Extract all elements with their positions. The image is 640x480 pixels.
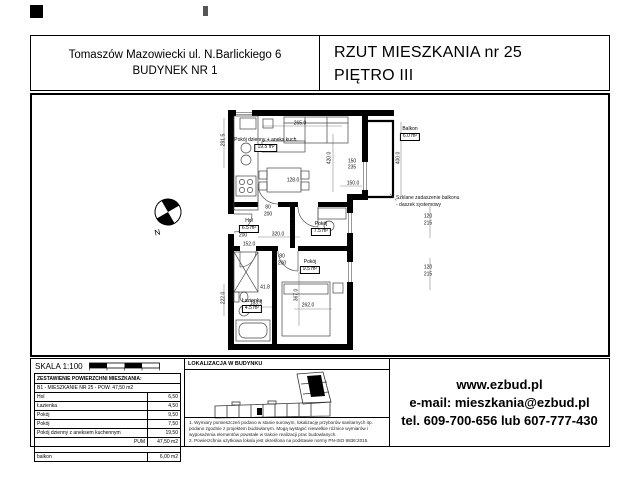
drawing-title: RZUT MIESZKANIA nr 25 bbox=[334, 41, 609, 64]
area-table-rows: Hol6,50Łazienka4,50Pokój9,50Pokój7,50Pok… bbox=[35, 393, 180, 438]
row-label: Pokój bbox=[35, 411, 147, 419]
area-table-subtitle: B1 - MIESZKANIE NR 25 - POW. 47,50 m2 bbox=[35, 384, 180, 393]
area-table-total-row: PUM 47,50 m2 bbox=[35, 438, 180, 447]
address-block: Tomaszów Mazowiecki ul. N.Barlickiego 6 … bbox=[31, 36, 320, 90]
row-label: Pokój bbox=[35, 420, 147, 428]
contact-box: www.ezbud.pl e-mail: mieszkania@ezbud.pl… bbox=[390, 358, 610, 447]
footnote: 2. Powierzchnia użytkowa lokalu jest okr… bbox=[189, 438, 385, 444]
floor-plan-frame bbox=[30, 93, 610, 357]
scale-label: SKALA 1:100 bbox=[35, 362, 83, 371]
row-value: 4,50 bbox=[147, 402, 180, 410]
building-number: BUDYNEK NR 1 bbox=[133, 65, 218, 77]
total-label: PUM bbox=[35, 438, 147, 446]
unit-marker bbox=[257, 408, 262, 415]
floor-label: PIĘTRO III bbox=[334, 64, 609, 87]
email: e-mail: mieszkania@ezbud.pl bbox=[409, 395, 589, 410]
area-table-row: Pokój7,50 bbox=[35, 420, 180, 429]
row-label: Pokój dzienny z aneksem kuchennym bbox=[35, 429, 147, 437]
drawing-sheet: Tomaszów Mazowiecki ul. N.Barlickiego 6 … bbox=[0, 0, 640, 480]
print-mark bbox=[30, 5, 43, 18]
building-footprint bbox=[185, 370, 388, 422]
row-value: 6,50 bbox=[147, 393, 180, 401]
area-table-title: ZESTAWIENIE POWIERZCHNI MIESZKANIA: bbox=[35, 374, 180, 384]
phone: tel. 609-700-656 lub 607-777-430 bbox=[401, 413, 598, 428]
area-table-row: Łazienka4,50 bbox=[35, 402, 180, 411]
row-label: Łazienka bbox=[35, 402, 147, 410]
balcony-label: balkon bbox=[35, 453, 147, 461]
website: www.ezbud.pl bbox=[456, 377, 542, 392]
area-table-row: Pokój9,50 bbox=[35, 411, 180, 420]
bottom-band: SKALA 1:100 ZESTAWIENIE POWIERZCHNI MIES… bbox=[30, 358, 610, 447]
footnote: 1. Wymiary pomieszczeń podano w stanie s… bbox=[189, 420, 385, 438]
row-label: Hol bbox=[35, 393, 147, 401]
title-block: Tomaszów Mazowiecki ul. N.Barlickiego 6 … bbox=[30, 35, 610, 91]
scale-row: SKALA 1:100 bbox=[31, 359, 184, 373]
row-value: 9,50 bbox=[147, 411, 180, 419]
total-value: 47,50 m2 bbox=[147, 438, 180, 446]
row-value: 7,50 bbox=[147, 420, 180, 428]
row-value: 19,50 bbox=[147, 429, 180, 437]
area-table: ZESTAWIENIE POWIERZCHNI MIESZKANIA: B1 -… bbox=[34, 373, 181, 462]
balcony-value: 6,00 m2 bbox=[147, 453, 180, 461]
area-table-row: Hol6,50 bbox=[35, 393, 180, 402]
location-box: LOKALIZACJA W BUDYNKU 1. Wymiary pomiesz… bbox=[185, 358, 390, 447]
print-mark bbox=[203, 6, 208, 16]
scale-bar bbox=[89, 362, 161, 371]
area-table-row: Pokój dzienny z aneksem kuchennym19,50 bbox=[35, 429, 180, 438]
drawing-title-block: RZUT MIESZKANIA nr 25 PIĘTRO III bbox=[320, 36, 609, 90]
area-table-balcony-row: balkon 6,00 m2 bbox=[35, 453, 180, 461]
footnotes: 1. Wymiary pomieszczeń podano w stanie s… bbox=[185, 417, 389, 446]
scale-and-area-box: SKALA 1:100 ZESTAWIENIE POWIERZCHNI MIES… bbox=[30, 358, 185, 447]
location-title: LOKALIZACJA W BUDYNKU bbox=[185, 359, 389, 370]
address-line: Tomaszów Mazowiecki ul. N.Barlickiego 6 bbox=[69, 49, 282, 61]
